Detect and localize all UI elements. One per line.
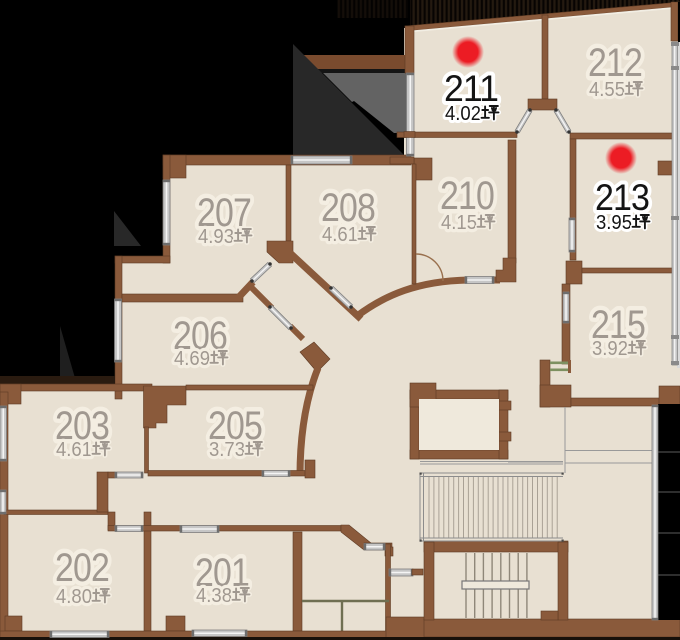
svg-text:4.38: 4.38: [196, 585, 232, 607]
svg-text:4.15: 4.15: [441, 212, 477, 234]
svg-text:4.69: 4.69: [174, 348, 210, 370]
svg-text:4.61: 4.61: [56, 439, 92, 461]
svg-text:4.02: 4.02: [445, 103, 481, 125]
svg-text:4.61: 4.61: [322, 224, 358, 246]
svg-text:3.73: 3.73: [209, 439, 245, 461]
svg-text:202: 202: [55, 546, 109, 590]
svg-text:4.80: 4.80: [56, 586, 92, 608]
svg-text:4.93: 4.93: [198, 226, 234, 248]
svg-text:4.55: 4.55: [589, 79, 625, 101]
svg-text:3.95: 3.95: [596, 212, 632, 234]
svg-text:3.92: 3.92: [592, 338, 628, 360]
